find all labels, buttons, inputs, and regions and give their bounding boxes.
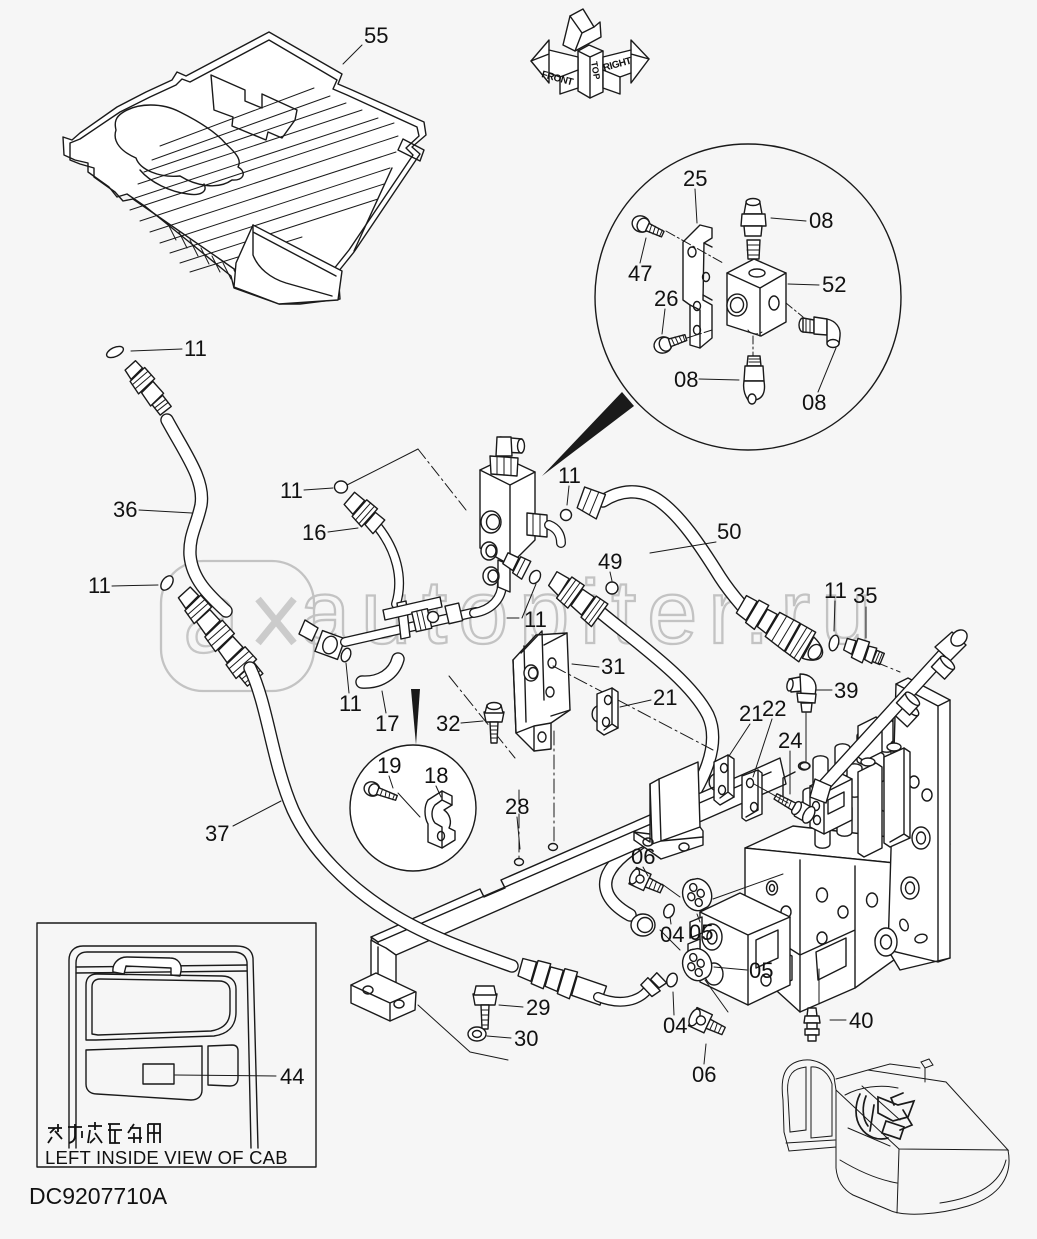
svg-text:37: 37 bbox=[205, 821, 229, 846]
svg-text:24: 24 bbox=[778, 728, 802, 753]
svg-text:28: 28 bbox=[505, 794, 529, 819]
svg-text:LEFT INSIDE VIEW OF CAB: LEFT INSIDE VIEW OF CAB bbox=[45, 1147, 288, 1168]
svg-text:40: 40 bbox=[849, 1008, 873, 1033]
svg-text:05: 05 bbox=[689, 920, 713, 945]
svg-text:16: 16 bbox=[302, 520, 326, 545]
svg-text:35: 35 bbox=[853, 583, 877, 608]
svg-text:11: 11 bbox=[88, 573, 111, 598]
svg-text:21: 21 bbox=[653, 685, 677, 710]
svg-text:DC9207710A: DC9207710A bbox=[29, 1183, 168, 1209]
svg-text:39: 39 bbox=[834, 678, 858, 703]
svg-text:25: 25 bbox=[683, 166, 707, 191]
svg-text:19: 19 bbox=[377, 753, 401, 778]
svg-text:11: 11 bbox=[824, 578, 847, 603]
svg-text:11: 11 bbox=[280, 478, 303, 503]
svg-text:11: 11 bbox=[184, 336, 207, 361]
svg-text:08: 08 bbox=[802, 390, 826, 415]
svg-text:05: 05 bbox=[749, 958, 773, 983]
svg-text:06: 06 bbox=[631, 844, 655, 869]
svg-text:30: 30 bbox=[514, 1026, 538, 1051]
svg-text:22: 22 bbox=[762, 696, 786, 721]
svg-text:21: 21 bbox=[739, 701, 763, 726]
svg-text:55: 55 bbox=[364, 23, 388, 48]
svg-text:08: 08 bbox=[674, 367, 698, 392]
svg-text:50: 50 bbox=[717, 519, 741, 544]
svg-text:08: 08 bbox=[809, 208, 833, 233]
svg-text:29: 29 bbox=[526, 995, 550, 1020]
svg-text:18: 18 bbox=[424, 763, 448, 788]
svg-text:36: 36 bbox=[113, 497, 137, 522]
svg-text:11: 11 bbox=[558, 463, 581, 488]
svg-text:44: 44 bbox=[280, 1064, 304, 1089]
svg-text:31: 31 bbox=[601, 654, 625, 679]
svg-text:04: 04 bbox=[660, 922, 684, 947]
svg-text:52: 52 bbox=[822, 272, 846, 297]
svg-text:11: 11 bbox=[339, 691, 362, 716]
svg-text:26: 26 bbox=[654, 286, 678, 311]
svg-text:11: 11 bbox=[524, 607, 547, 632]
svg-text:47: 47 bbox=[628, 261, 652, 286]
svg-text:04: 04 bbox=[663, 1013, 687, 1038]
svg-text:06: 06 bbox=[692, 1062, 716, 1087]
svg-text:32: 32 bbox=[436, 711, 460, 736]
svg-text:17: 17 bbox=[375, 711, 399, 736]
svg-text:49: 49 bbox=[598, 549, 622, 574]
